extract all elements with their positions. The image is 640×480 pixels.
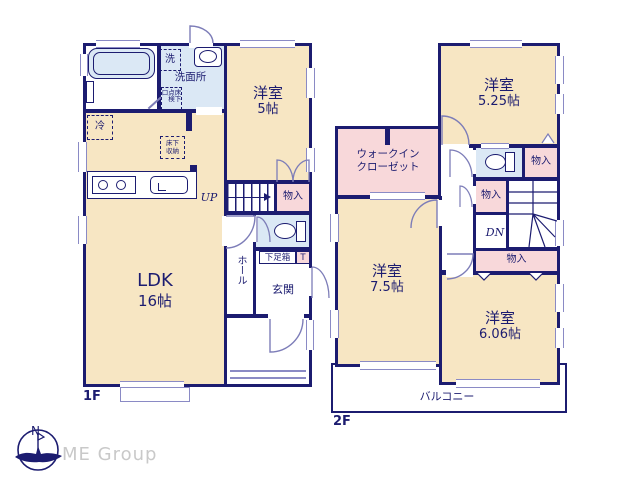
porch-step-line [230,377,306,379]
porch-step-line [230,370,306,372]
wic-label: ウォークイン クローゼット [340,148,436,173]
corner-door-mark [541,133,555,144]
window [456,379,540,388]
underfloor-line2: 収納 [160,147,185,155]
western-room-text: 洋室 [227,84,309,102]
room-ldk [83,110,227,387]
toilet-bowl-1f [274,223,296,239]
door-arc-75 [410,199,438,228]
shoe-box-label: 下足箱 [259,253,296,263]
window [78,216,87,244]
closet-double-doors-1f [276,159,310,182]
toilet-mark-label: T [296,253,310,263]
stairs-2f-treads [509,181,557,247]
closet-1f-label: 物入 [274,191,312,203]
wic-line2: クローゼット [340,161,436,174]
inspection-hatch: 床下点検口 [161,87,182,110]
western75-size: 7.5帖 [346,280,428,296]
hall-label: ホール [234,240,246,300]
kitchen-faucet [158,183,166,191]
door-arc-toilet-2f [449,149,472,177]
western525-size: 5.25帖 [458,94,540,110]
western5-label: 洋室 5帖 [227,84,309,118]
compass-north-label: N [31,424,40,438]
floorplan-canvas: バルコニー 洗 洗面所 床下点検口 冷 床下 [0,0,640,480]
window [555,94,564,114]
terrace-step [120,387,190,402]
closet-door-mark [528,272,544,281]
window [240,40,295,48]
washbasin-bowl [199,50,217,63]
western75-label: 洋室 7.5帖 [346,262,428,296]
western525-label: 洋室 5.25帖 [458,76,540,110]
wall-stub [186,110,192,131]
door-arc-front-door [311,266,329,298]
western5-size: 5帖 [227,102,309,118]
opening [196,107,222,115]
floor1-label: 1F [83,389,113,405]
balcony-label: バルコニー [387,390,507,403]
entrance-label: 玄関 [258,283,308,296]
stove-burner [98,180,108,190]
window [78,142,87,172]
laundry-label: 洗 [159,54,181,66]
door-arc-toilet-1f [256,216,270,242]
western606-size: 6.06帖 [459,327,541,343]
window [330,310,339,338]
stove-burner [116,180,126,190]
wall-stub [385,126,390,145]
window [470,40,522,48]
fridge-label: 冷 [87,121,113,133]
door-arc-606 [446,253,473,279]
company-logo-text: ME Group [62,444,157,465]
window [555,56,564,84]
toilet-tank-2f [505,152,515,172]
western-room-text: 洋室 [459,309,541,327]
up-label: UP [196,191,222,204]
wic-line1: ウォークイン [340,148,436,161]
door-arc-entrance-porch [269,318,304,353]
door-arc-closet-2f-b [459,185,472,207]
door-arc-ldk-hall [225,215,256,248]
closet-2f-b-label: 物入 [473,190,509,202]
toilet-bowl-2f [485,154,506,170]
ldk-size: 16帖 [105,292,205,310]
inspection-col-left: 点検口 [160,89,175,102]
floor2-label: 2F [333,414,363,430]
ldk-text: LDK [105,270,205,292]
door-arc-backdoor [189,26,213,43]
ldk-label: LDK 16帖 [105,270,205,310]
closet-2f-a-label: 物入 [522,156,560,168]
compass-icon: N [12,420,64,474]
window [96,40,140,48]
window [80,54,88,76]
window [481,143,509,149]
washroom-label: 洗面所 [163,71,218,84]
dn-label: DN [484,226,506,239]
closet-2f-c-label: 物入 [473,254,560,266]
underfloor-storage-label: 床下 収納 [160,139,185,156]
door-arc-525 [441,115,469,145]
window [330,214,339,242]
bathtub-inner [93,52,150,75]
opening [437,200,444,226]
kitchen-sink [150,176,188,194]
closet-door-mark [476,272,492,281]
window [306,320,314,350]
western-room-text: 洋室 [346,262,428,280]
window [360,361,436,370]
western606-label: 洋室 6.06帖 [459,309,541,343]
up-arrow-line [227,197,265,198]
window [555,284,564,312]
western-room-text: 洋室 [458,76,540,94]
bath-counter [86,81,94,103]
window [555,328,564,348]
up-arrow-head [264,193,271,201]
toilet-tank-1f [296,221,306,242]
